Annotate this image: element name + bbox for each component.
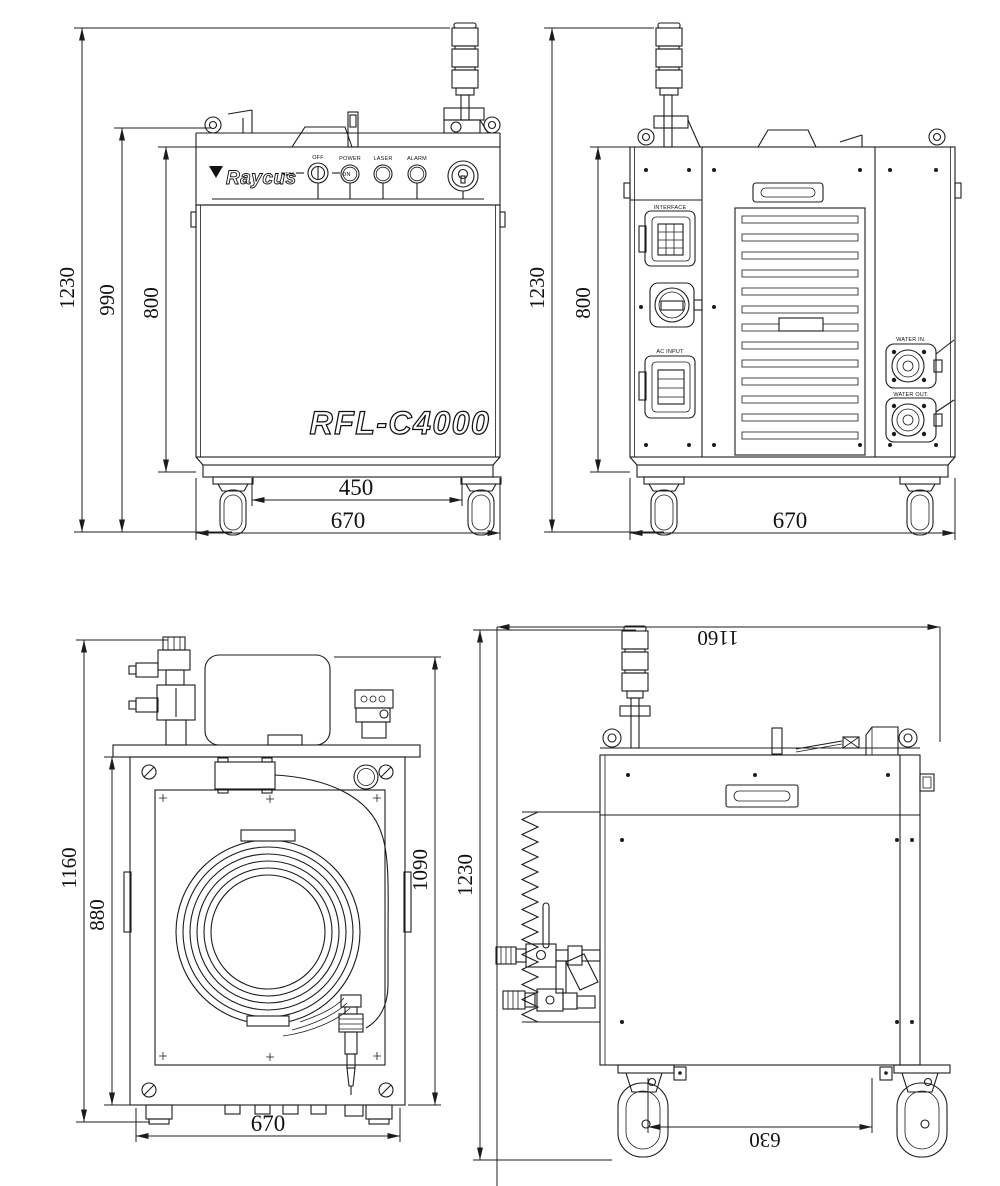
side-top-deck — [600, 727, 920, 755]
coil-clamp — [247, 1016, 289, 1026]
eye-bolt-icon — [484, 117, 500, 133]
back-dim-body-height: 800 — [571, 287, 595, 319]
top-dim-total-length: 1160 — [57, 847, 81, 888]
back-dimensions: 1230 800 670 — [525, 28, 955, 540]
eye-bolt-icon — [603, 729, 621, 747]
side-handle — [726, 785, 798, 807]
front-body: RFL-C4000 — [191, 205, 505, 457]
top-dim-inner-length: 1090 — [408, 849, 432, 891]
top-dim-width: 670 — [251, 1111, 286, 1136]
eye-bolt-icon — [929, 129, 945, 145]
front-caster-left — [213, 477, 253, 535]
interface-label: INTERFACE — [654, 205, 687, 211]
front-dim-caster-span: 450 — [339, 475, 374, 500]
grille-nameplate — [779, 318, 823, 331]
model-name: RFL-C4000 — [310, 405, 491, 441]
side-dim-caster-span: 630 — [749, 1128, 781, 1152]
back-view: 1230 800 670 — [525, 23, 961, 540]
laser-label: LASER — [373, 156, 392, 162]
side-dim-total-length: 1160 — [697, 626, 738, 650]
alarm-label: ALARM — [407, 156, 427, 162]
front-view: 1230 990 800 450 670 — [55, 23, 505, 540]
alarm-indicator: ALARM — [407, 156, 427, 199]
side-latch — [920, 774, 934, 791]
front-dim-total-height: 1230 — [55, 267, 79, 309]
side-caster-right — [880, 1065, 950, 1157]
front-dim-width: 670 — [331, 508, 366, 533]
back-caster-right — [900, 477, 940, 535]
front-dim-frame-height: 990 — [95, 284, 119, 316]
front-dim-body-height: 800 — [139, 287, 163, 319]
water-out-label: WATER OUT. — [893, 392, 929, 398]
top-view: 1160 880 1090 670 — [57, 637, 441, 1142]
laser-indicator: LASER — [373, 156, 392, 199]
technical-drawing-sheet: 1230 990 800 450 670 — [0, 0, 1000, 1186]
front-control-panel: Raycus OFF REM ON POWER LASER — [196, 147, 500, 205]
side-view: 1160 1230 630 — [453, 626, 950, 1186]
aux-circular-connector — [650, 283, 702, 327]
water-in-fitting: WATER IN. — [886, 337, 954, 388]
front-signal-light — [444, 23, 488, 133]
water-out-fitting: WATER OUT. — [886, 392, 954, 442]
top-cover — [205, 655, 330, 745]
top-valve-assembly — [129, 637, 195, 745]
ac-input-label: AC INPUT — [656, 349, 684, 355]
front-caster-right — [461, 477, 501, 535]
front-top-frame — [196, 110, 500, 147]
top-dimensions: 1160 880 1090 670 — [57, 640, 441, 1142]
eye-bolt-icon — [899, 729, 917, 747]
back-handle — [753, 183, 823, 202]
switch-rem-label: REM — [281, 172, 294, 178]
side-signal-light — [620, 626, 650, 748]
back-signal-light — [654, 23, 700, 147]
back-base — [630, 457, 955, 477]
side-body — [600, 755, 934, 1065]
key-switch — [448, 161, 478, 199]
valve-lever — [543, 903, 549, 948]
power-label: POWER — [339, 156, 361, 162]
front-base — [196, 457, 500, 477]
top-dim-body-length: 880 — [85, 899, 109, 931]
drawing-canvas: 1230 990 800 450 670 — [0, 0, 1000, 1186]
coil-clamp — [241, 830, 295, 841]
top-rear-connector — [355, 690, 393, 738]
ventilation-grille — [735, 208, 865, 455]
water-in-label: WATER IN. — [896, 337, 926, 343]
interface-connector: INTERFACE — [639, 205, 695, 266]
eye-bolt-icon — [638, 129, 654, 145]
side-dim-total-height: 1230 — [453, 854, 477, 896]
front-dimensions: 1230 990 800 450 670 — [55, 28, 500, 540]
back-caster-left — [644, 477, 684, 535]
back-dim-total-height: 1230 — [525, 267, 549, 309]
qbh-connector — [339, 995, 363, 1095]
side-water-valves — [496, 903, 600, 1011]
switch-off-label: OFF — [312, 155, 324, 161]
side-dimensions: 1160 1230 630 — [453, 626, 940, 1186]
back-top-frame — [638, 129, 945, 147]
side-coil-bracket — [522, 812, 600, 1022]
fiber-coil — [176, 830, 360, 1036]
raycus-logo-mark-icon — [209, 166, 223, 178]
junction-box — [215, 762, 275, 789]
back-dim-width: 670 — [773, 508, 808, 533]
eye-bolt-icon — [205, 117, 221, 133]
ac-input-connector: AC INPUT — [639, 349, 695, 418]
top-plate — [113, 745, 420, 1105]
side-caster-left — [618, 1065, 686, 1157]
